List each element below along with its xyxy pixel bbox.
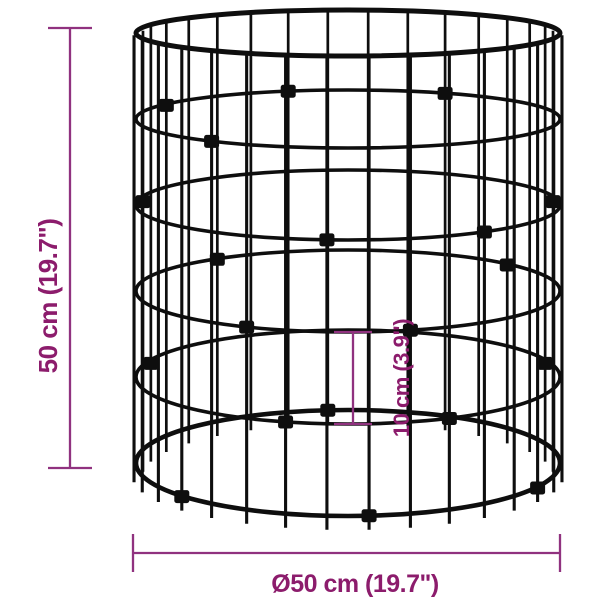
wire-ring [136, 410, 560, 516]
wire-clamp [538, 357, 553, 370]
gabion-dimension-diagram: 50 cm (19.7") 10 cm (3.9") Ø50 cm (19.7"… [0, 0, 600, 600]
wire-clamp [204, 135, 219, 148]
mesh-size-dimension: 10 cm (3.9") [334, 319, 414, 437]
gabion-basket-drawing [134, 10, 562, 530]
wire-ring [136, 10, 560, 56]
wire-ring [136, 250, 560, 332]
diagram-canvas: 50 cm (19.7") 10 cm (3.9") Ø50 cm (19.7"… [0, 0, 600, 600]
wire-clamp [362, 509, 377, 522]
wire-clamp [210, 253, 225, 266]
wire-clamp [319, 233, 334, 246]
wire-clamp [500, 258, 515, 271]
wire-clamp [174, 490, 189, 503]
wire-ring [136, 170, 560, 240]
wire-clamp [546, 195, 561, 208]
wire-ring [136, 90, 560, 148]
wire-clamp [530, 481, 545, 494]
mesh-dimension-label: 10 cm (3.9") [389, 319, 414, 437]
diameter-dimension-label: Ø50 cm (19.7") [271, 570, 439, 598]
wire-clamp [143, 357, 158, 370]
wire-clamp [239, 321, 254, 334]
height-dimension: 50 cm (19.7") [33, 28, 92, 468]
wire-clamp [281, 85, 296, 98]
wire-clamp [438, 87, 453, 100]
wire-clamp [442, 412, 457, 425]
height-dimension-label: 50 cm (19.7") [33, 219, 63, 374]
diameter-dimension: Ø50 cm (19.7") [133, 534, 560, 598]
wire-clamp [477, 226, 492, 239]
wire-clamp [278, 415, 293, 428]
wire-clamp [159, 99, 174, 112]
wire-clamp [135, 195, 150, 208]
wire-clamp [320, 404, 335, 417]
